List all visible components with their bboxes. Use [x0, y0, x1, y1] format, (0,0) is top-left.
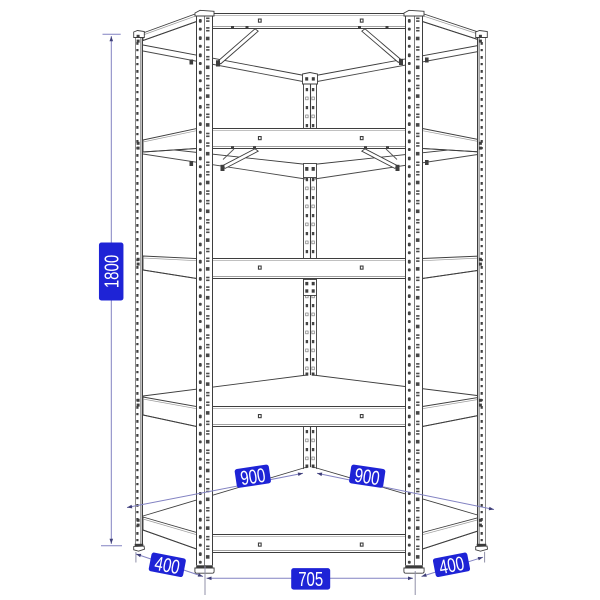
svg-text:400: 400 [153, 552, 182, 579]
svg-text:900: 900 [239, 464, 267, 490]
svg-text:900: 900 [353, 464, 381, 490]
svg-text:705: 705 [298, 568, 323, 591]
svg-text:400: 400 [437, 552, 466, 579]
svg-text:1800: 1800 [100, 255, 123, 288]
